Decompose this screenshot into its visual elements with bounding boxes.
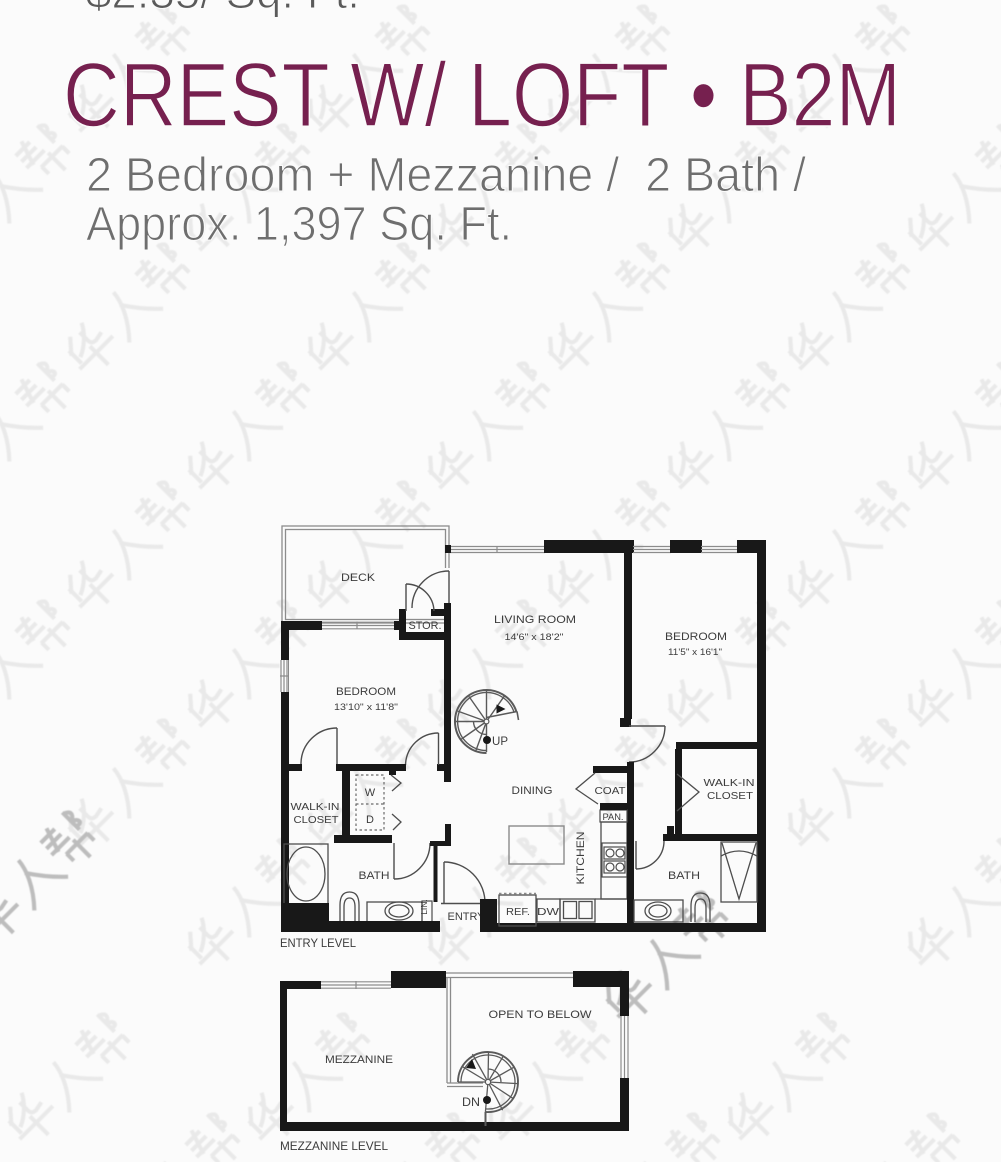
svg-text:CLOSET: CLOSET xyxy=(294,815,339,826)
svg-text:ENTRY LEVEL: ENTRY LEVEL xyxy=(280,936,356,950)
svg-text:ENTRY: ENTRY xyxy=(448,911,486,923)
svg-text:WALK-IN: WALK-IN xyxy=(291,802,340,813)
svg-text:LIN.: LIN. xyxy=(419,899,429,915)
svg-text:DW: DW xyxy=(537,907,560,918)
svg-text:11'5" x 16'1": 11'5" x 16'1" xyxy=(668,647,722,658)
svg-text:KITCHEN: KITCHEN xyxy=(575,831,587,884)
svg-text:REF.: REF. xyxy=(506,907,530,918)
svg-text:MEZZANINE LEVEL: MEZZANINE LEVEL xyxy=(280,1139,388,1153)
svg-text:$2.35/ Sq. Ft.: $2.35/ Sq. Ft. xyxy=(86,0,360,18)
svg-text:COAT: COAT xyxy=(595,786,626,797)
svg-text:W: W xyxy=(365,787,376,799)
svg-text:13'10" x 11'8": 13'10" x 11'8" xyxy=(334,702,398,713)
svg-text:STOR.: STOR. xyxy=(409,620,442,632)
svg-text:UP: UP xyxy=(492,736,508,748)
svg-text:DECK: DECK xyxy=(341,572,376,584)
svg-text:DN: DN xyxy=(462,1097,480,1109)
svg-text:BATH: BATH xyxy=(359,870,390,882)
svg-text:OPEN TO BELOW: OPEN TO BELOW xyxy=(489,1009,593,1021)
svg-text:BEDROOM: BEDROOM xyxy=(665,631,727,643)
svg-text:BEDROOM: BEDROOM xyxy=(336,686,396,698)
svg-text:BATH: BATH xyxy=(668,870,700,882)
svg-text:CLOSET: CLOSET xyxy=(707,791,753,802)
svg-text:Approx. 1,397 Sq. Ft.: Approx. 1,397 Sq. Ft. xyxy=(86,198,512,251)
svg-text:2 Bedroom + Mezzanine / 2 Bat: 2 Bedroom + Mezzanine / 2 Bath / xyxy=(86,149,807,202)
svg-text:LIVING ROOM: LIVING ROOM xyxy=(494,614,576,626)
svg-text:PAN.: PAN. xyxy=(603,812,624,823)
svg-text:D: D xyxy=(366,814,374,826)
svg-text:DINING: DINING xyxy=(512,785,553,797)
svg-text:WALK-IN: WALK-IN xyxy=(704,778,755,789)
svg-text:MEZZANINE: MEZZANINE xyxy=(325,1054,393,1066)
svg-text:CREST W/ LOFT • B2M: CREST W/ LOFT • B2M xyxy=(63,45,901,146)
svg-text:14'6" x 18'2": 14'6" x 18'2" xyxy=(505,632,564,643)
